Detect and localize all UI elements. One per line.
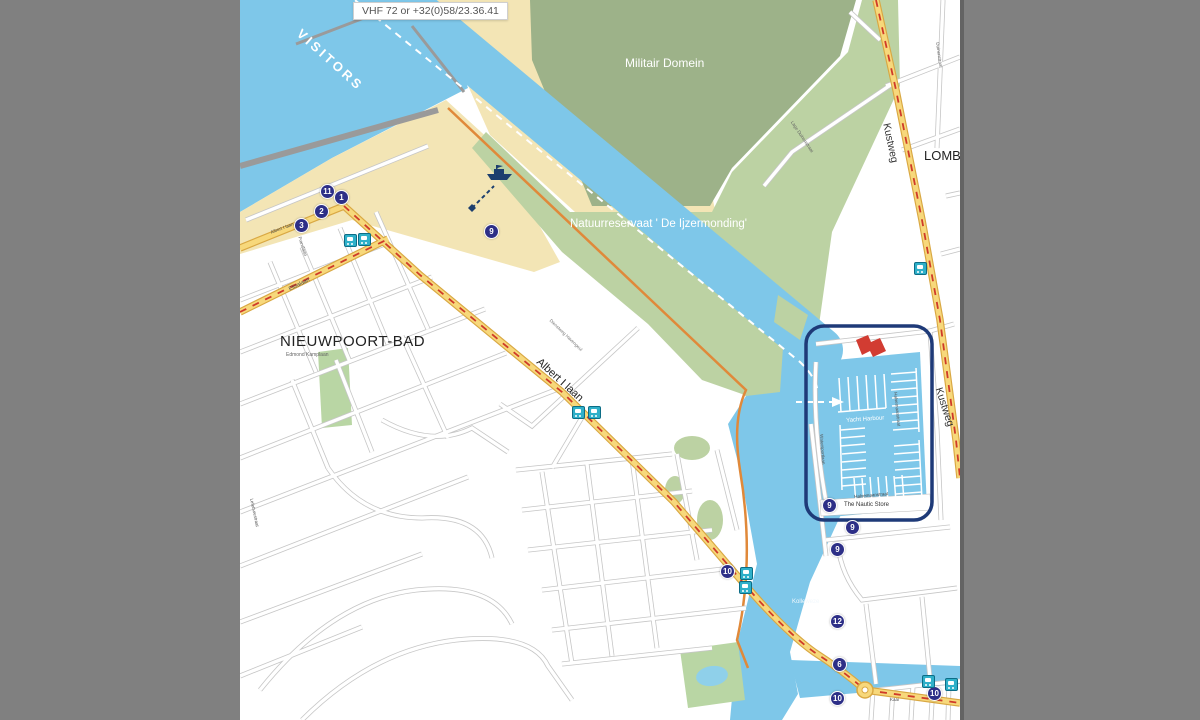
poi-badge-3[interactable]: 3 [294, 218, 309, 233]
poi-badge-6[interactable]: 6 [832, 657, 847, 672]
tram-stop-icon[interactable] [344, 234, 357, 247]
desktop-background: VHF 72 or +32(0)58/23.36.41 VISITORS Mil… [0, 0, 1200, 720]
poi-badge-9-nautic-store[interactable]: 9 [822, 498, 837, 513]
vhf-contact-label: VHF 72 or +32(0)58/23.36.41 [353, 2, 508, 20]
nautic-store-label: The Nautic Store [844, 502, 889, 508]
military-domain-label: Militair Domein [625, 56, 704, 70]
street-label-edmond-kamplaan: Edmond Kamplaan [286, 352, 329, 358]
poi-badge-2[interactable]: 2 [314, 204, 329, 219]
poi-badge-9-channel[interactable]: 9 [484, 224, 499, 239]
nature-reserve-label: Natuurreservaat ' De Ijzermonding' [570, 218, 747, 230]
map-viewport[interactable]: VHF 72 or +32(0)58/23.36.41 VISITORS Mil… [240, 0, 964, 720]
tram-stop-icon[interactable] [358, 233, 371, 246]
tram-stop-icon[interactable] [914, 262, 927, 275]
tram-stop-icon[interactable] [945, 678, 958, 691]
roundabout-island [862, 687, 868, 693]
poi-badge-10-west[interactable]: 10 [720, 564, 735, 579]
tram-stop-icon[interactable] [922, 675, 935, 688]
vhf-contact-text: VHF 72 or +32(0)58/23.36.41 [362, 5, 499, 17]
poi-badge-10-south[interactable]: 10 [830, 691, 845, 706]
lombardsijde-label: LOMBARDSIJDE [924, 148, 964, 163]
poi-badge-9-south-1[interactable]: 9 [845, 520, 860, 535]
map-canvas [240, 0, 960, 720]
water-label-kolleweze: Kolleweze [792, 599, 819, 605]
tram-stop-icon[interactable] [739, 581, 752, 594]
tram-stop-icon[interactable] [740, 567, 753, 580]
tram-stop-icon[interactable] [588, 406, 601, 419]
ferry-icon [486, 164, 514, 182]
poi-badge-12[interactable]: 12 [830, 614, 845, 629]
poi-badge-1[interactable]: 1 [334, 190, 349, 205]
poi-badge-10-east[interactable]: 10 [927, 686, 942, 701]
town-label: NIEUWPOORT-BAD [280, 333, 425, 350]
street-label-kaai: Kaai [890, 697, 899, 702]
poi-badge-9-south-2[interactable]: 9 [830, 542, 845, 557]
tram-stop-icon[interactable] [572, 406, 585, 419]
poi-badge-11[interactable]: 11 [320, 184, 335, 199]
